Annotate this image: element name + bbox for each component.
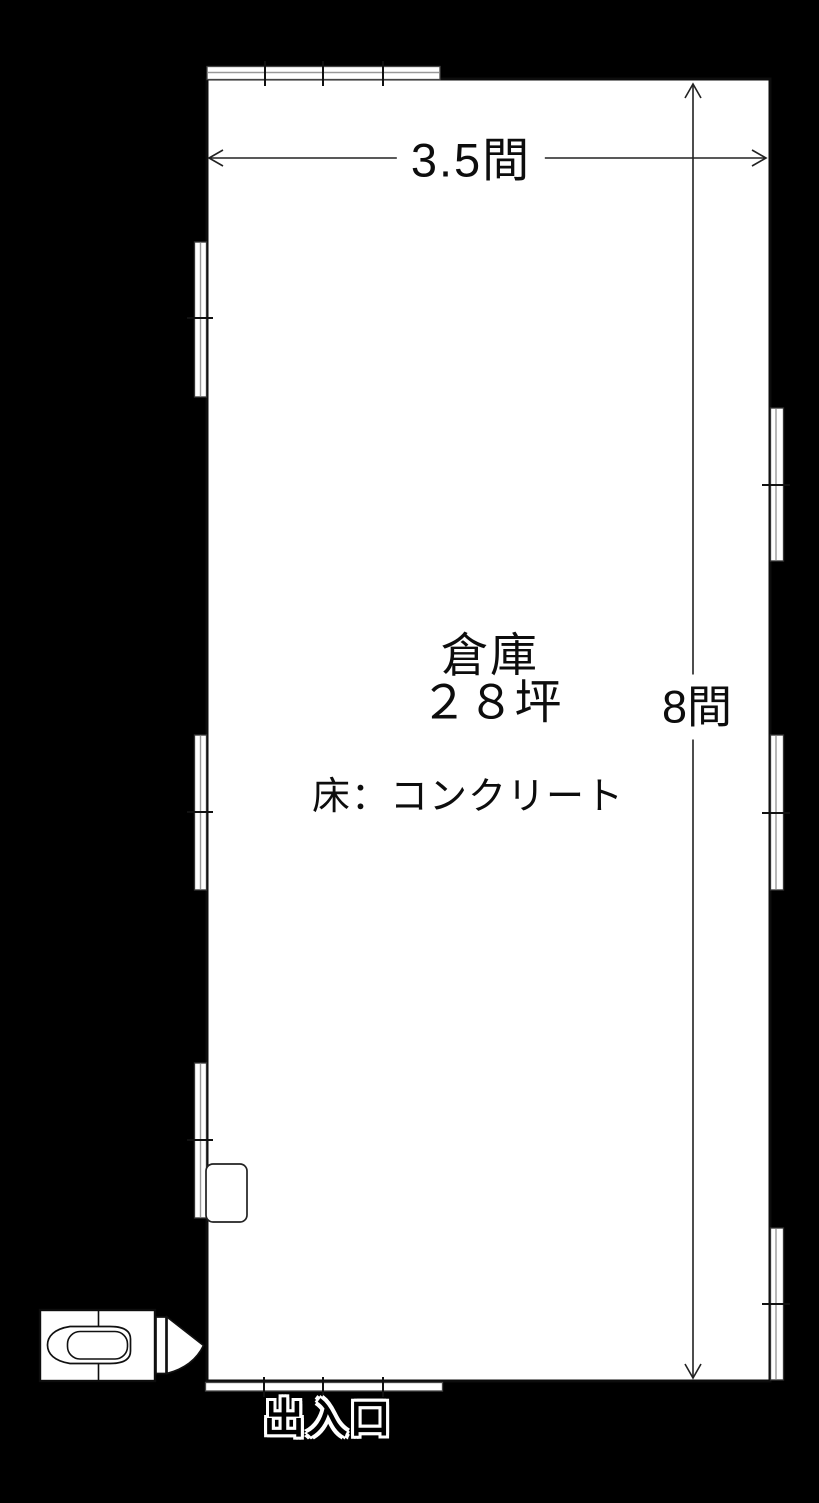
- floor-plan-canvas: 3.5間 8間 倉庫 ２８坪 床：コンクリート 出入口: [0, 0, 819, 1503]
- exterior-fixture: [40, 1310, 155, 1381]
- room-area-label: ２８坪: [421, 679, 562, 726]
- floor-spec-label: 床：コンクリート: [312, 778, 624, 816]
- width-dimension-label: 3.5間: [397, 133, 545, 188]
- entrance-door: [156, 1317, 204, 1374]
- equipment-box: [206, 1164, 247, 1222]
- height-dimension-label: 8間: [658, 675, 736, 740]
- floor-plan-drawing: [0, 0, 819, 1503]
- room-name-label: 倉庫: [441, 632, 539, 679]
- entrance-label: 出入口: [264, 1399, 393, 1440]
